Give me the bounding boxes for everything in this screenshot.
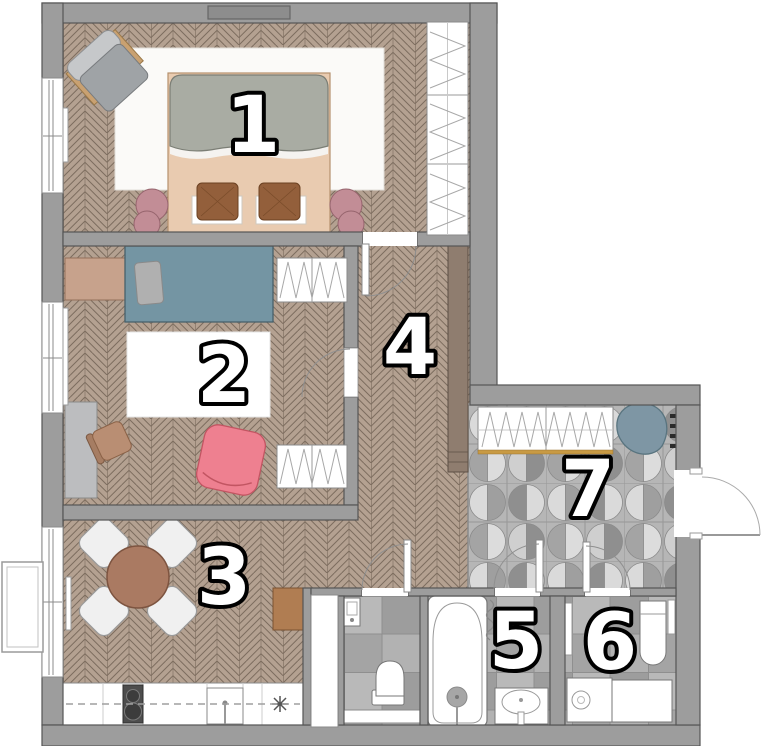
radiator [63,108,68,162]
wardrobe-room2-top [277,258,347,302]
wardrobe-room1 [427,22,468,235]
side-cabinet [273,588,303,630]
outer-wall-step [470,385,700,405]
exterior-unit [2,562,43,652]
wall-bath5-bath6 [550,596,565,725]
window-room1 [42,78,63,193]
wc-shelf [344,710,421,723]
radiator [63,308,68,405]
wall-room2-room3 [63,505,358,520]
hall-cabinet [448,246,468,472]
radiator-panel [565,603,572,655]
sink-icon [207,688,243,724]
wall-bath-top [408,588,495,596]
wall-bath-top [540,588,585,596]
toilet-icon [640,601,666,665]
room-3-hall-connector-floor [311,520,358,590]
wall-room1-room2 [63,232,363,246]
bed-pillow [134,261,164,305]
wall-panel [668,600,675,634]
room-label-1: 1 [226,81,280,171]
hallway-4 [448,246,468,472]
bathtub-icon [428,596,487,740]
outer-wall-right-lower [676,405,700,725]
floor-plan: 1 2 3 4 5 6 7 [0,0,766,746]
room-label-6: 6 [583,598,637,688]
wall-wc-left [338,596,344,725]
dining-table [107,546,169,608]
window-room3 [42,527,63,677]
room-label-2: 2 [197,331,251,421]
wall-wc-right [420,596,428,725]
floor-plan-canvas: 1 2 3 4 5 6 7 [0,0,766,746]
kitchen-counter [63,683,303,725]
wardrobe-room2-bottom [277,445,347,488]
room-label-4: 4 [383,303,437,393]
outer-wall-bottom [42,725,700,746]
wall-niche [208,6,290,19]
room-label-5: 5 [489,597,543,687]
dresser [65,258,127,300]
radiator [66,577,71,630]
windows [2,78,71,677]
water-heater-icon [344,598,360,626]
wall-bath-top [630,588,676,596]
pink-armchair [194,422,268,497]
wall-kitchen-right [303,588,311,725]
room-label-3: 3 [197,533,251,623]
washbasin-icon [495,688,548,725]
outer-wall-right-upper [470,3,497,405]
utility-column [311,595,338,727]
entrance-door [674,468,760,539]
window-room2 [42,302,63,413]
room-label-7: 7 [561,445,615,535]
